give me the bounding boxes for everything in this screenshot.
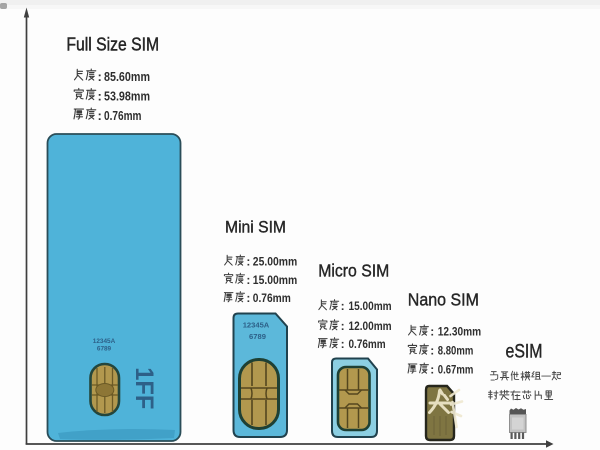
svg-text::: : xyxy=(341,299,345,313)
svg-text:6789: 6789 xyxy=(97,346,112,353)
svg-text:85.60mm: 85.60mm xyxy=(104,70,150,84)
svg-text:6789: 6789 xyxy=(249,332,266,341)
svg-text:0.76mm: 0.76mm xyxy=(104,109,142,123)
svg-text::: : xyxy=(341,337,345,351)
svg-text:Micro SIM: Micro SIM xyxy=(318,260,389,280)
svg-text:12.00mm: 12.00mm xyxy=(349,319,392,333)
svg-text:12345A: 12345A xyxy=(243,321,270,330)
svg-text:53.98mm: 53.98mm xyxy=(104,89,150,103)
svg-text::: : xyxy=(98,108,102,123)
svg-text::: : xyxy=(246,273,250,287)
svg-text:0.76mm: 0.76mm xyxy=(253,291,291,305)
svg-text:12.30mm: 12.30mm xyxy=(438,325,481,339)
svg-text:Full Size SIM: Full Size SIM xyxy=(66,33,159,54)
svg-text:15.00mm: 15.00mm xyxy=(349,299,392,313)
svg-text::: : xyxy=(246,255,250,269)
svg-text:12345A: 12345A xyxy=(93,338,116,345)
svg-text::: : xyxy=(98,69,102,84)
svg-text:eSIM: eSIM xyxy=(506,341,543,362)
svg-text::: : xyxy=(430,363,434,377)
svg-text:1FF: 1FF xyxy=(130,367,158,409)
svg-text:15.00mm: 15.00mm xyxy=(253,273,297,287)
svg-text::: : xyxy=(430,344,434,358)
svg-text:0.76mm: 0.76mm xyxy=(349,337,386,351)
svg-text:25.00mm: 25.00mm xyxy=(253,255,297,269)
svg-text:8.80mm: 8.80mm xyxy=(438,344,474,358)
svg-text:Nano SIM: Nano SIM xyxy=(408,289,479,309)
svg-text:0.67mm: 0.67mm xyxy=(438,363,474,377)
svg-text::: : xyxy=(98,88,102,103)
svg-text::: : xyxy=(430,325,434,339)
svg-text::: : xyxy=(341,319,345,333)
svg-text:Mini SIM: Mini SIM xyxy=(225,217,286,236)
svg-text::: : xyxy=(246,291,250,305)
